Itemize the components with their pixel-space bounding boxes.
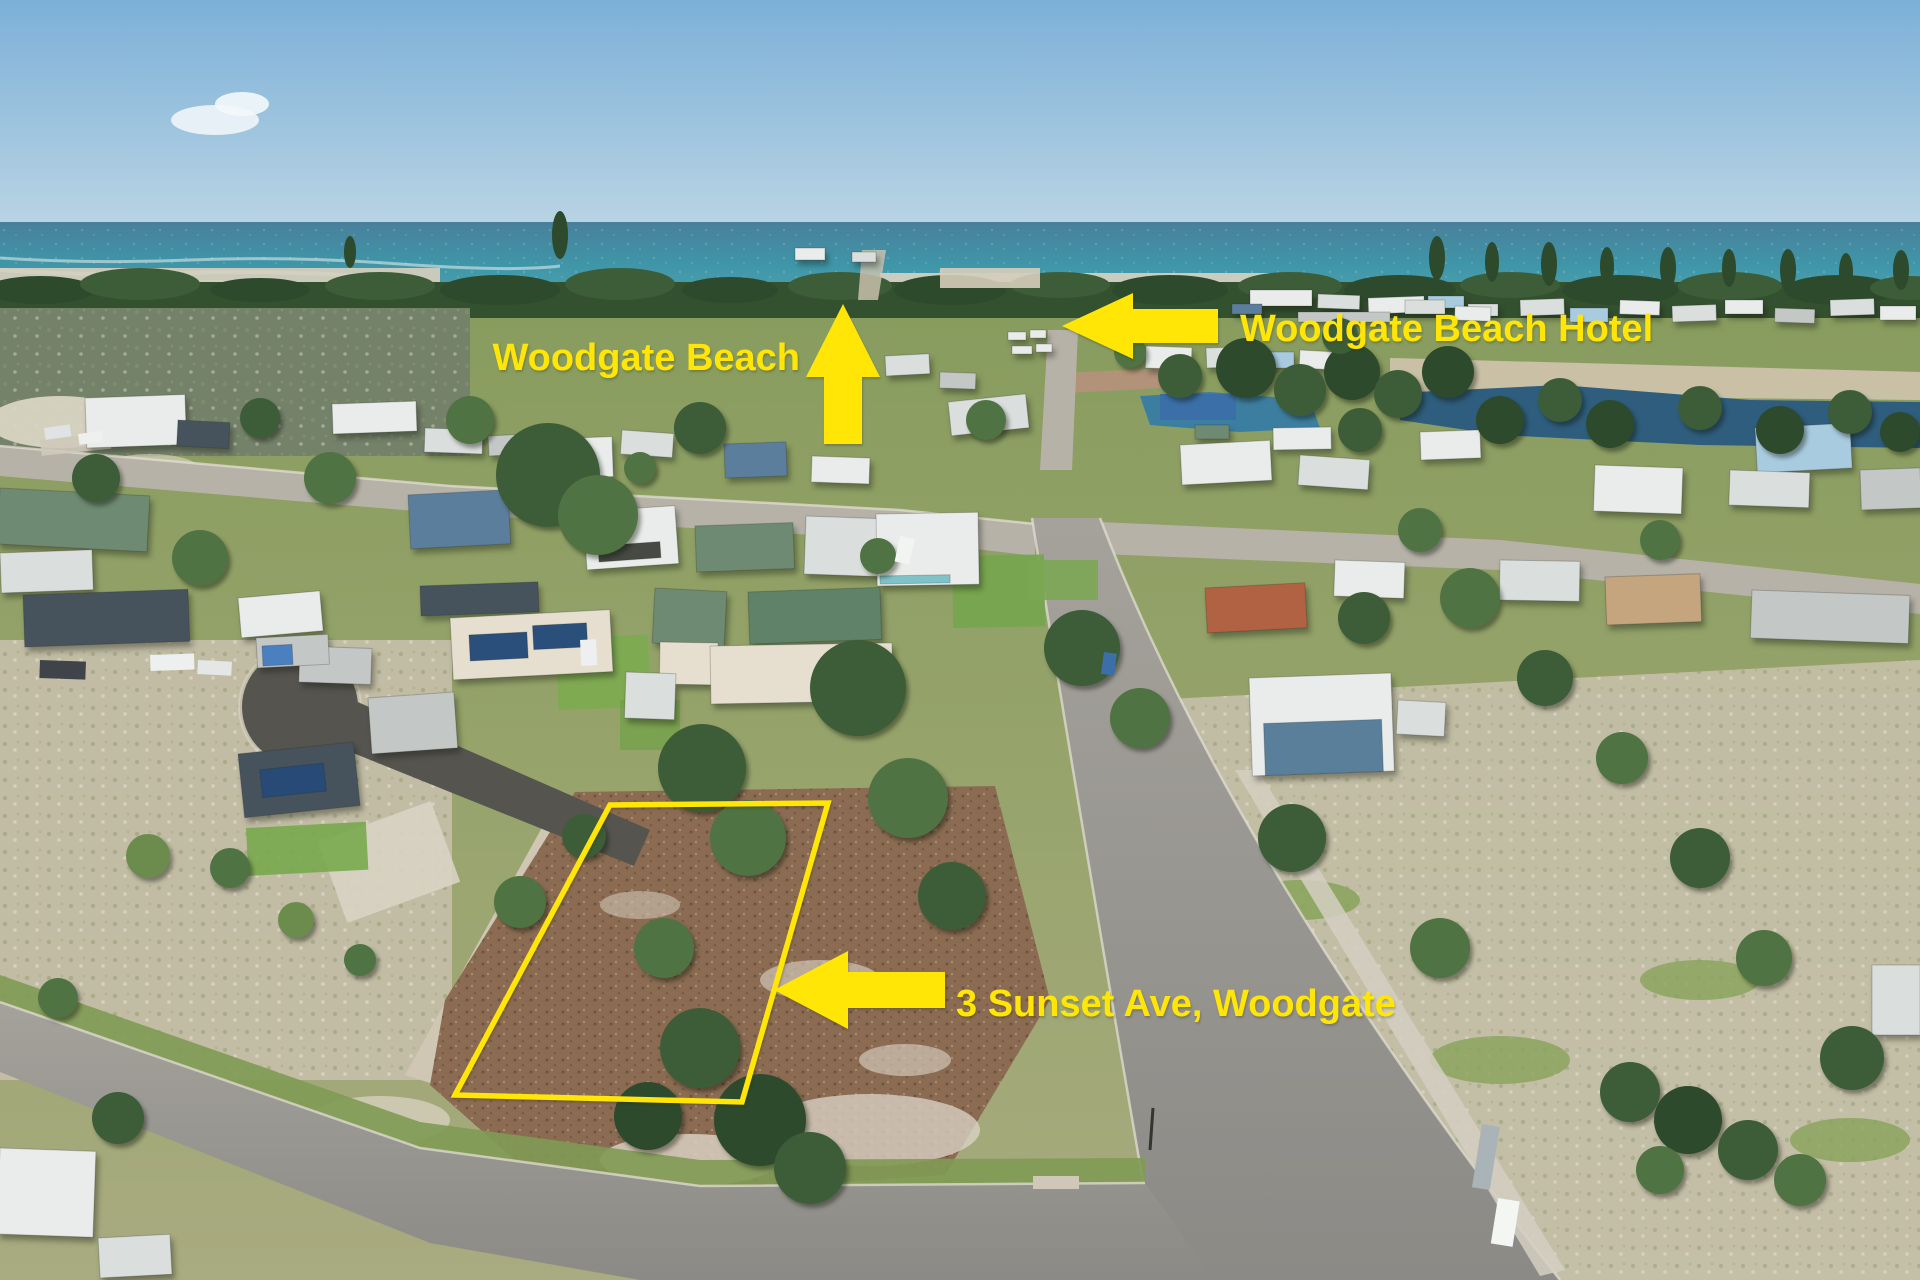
- dark-caravan: [39, 660, 86, 680]
- aerial-photo: Woodgate Beach Woodgate Beach Hotel 3 Su…: [0, 0, 1920, 1280]
- beach-label: Woodgate Beach: [492, 337, 800, 379]
- hotel-label: Woodgate Beach Hotel: [1240, 308, 1653, 350]
- lakeside-roof: [1160, 394, 1236, 420]
- property-label: 3 Sunset Ave, Woodgate: [956, 983, 1396, 1025]
- aerial-photo-canvas: Woodgate Beach Woodgate Beach Hotel 3 Su…: [0, 0, 1920, 1280]
- sky: [0, 0, 1920, 232]
